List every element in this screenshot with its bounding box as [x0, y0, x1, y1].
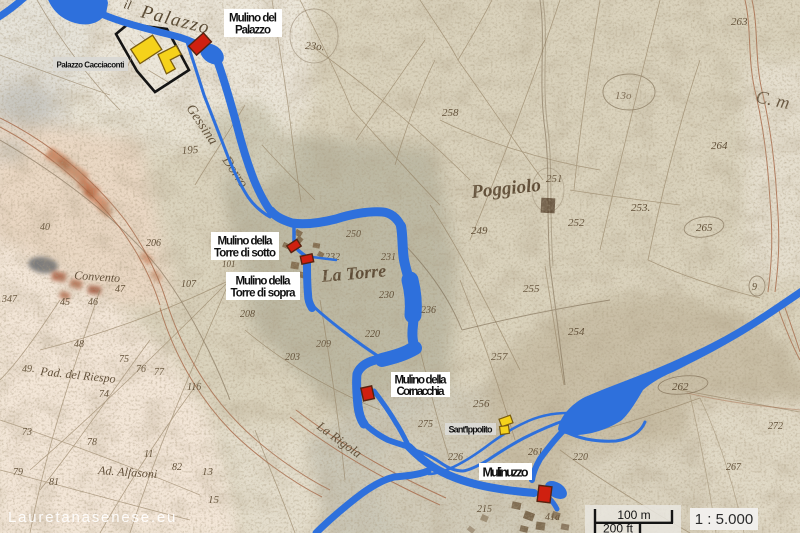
svg-text:Palazzo Cacciaconti: Palazzo Cacciaconti	[57, 61, 125, 70]
svg-text:Palazzo: Palazzo	[235, 25, 271, 37]
svg-text:1 : 5.000: 1 : 5.000	[695, 511, 753, 528]
svg-text:100 m: 100 m	[617, 508, 650, 522]
svg-text:Torre di sotto: Torre di sotto	[214, 248, 276, 260]
svg-text:200 ft: 200 ft	[603, 522, 634, 533]
svg-text:Mulino della: Mulino della	[236, 276, 292, 288]
svg-text:Cornacchia: Cornacchia	[397, 386, 446, 398]
svg-text:Torre di sopra: Torre di sopra	[231, 288, 297, 300]
svg-text:Lauretanasenese.eu: Lauretanasenese.eu	[8, 509, 177, 526]
svg-text:Mulino del: Mulino del	[229, 13, 277, 25]
svg-text:Mulinuzzo: Mulinuzzo	[483, 466, 529, 480]
svg-text:Sant'Ippolito: Sant'Ippolito	[449, 425, 494, 435]
svg-text:Mulino della: Mulino della	[395, 375, 448, 387]
svg-text:Mulino della: Mulino della	[218, 236, 274, 248]
